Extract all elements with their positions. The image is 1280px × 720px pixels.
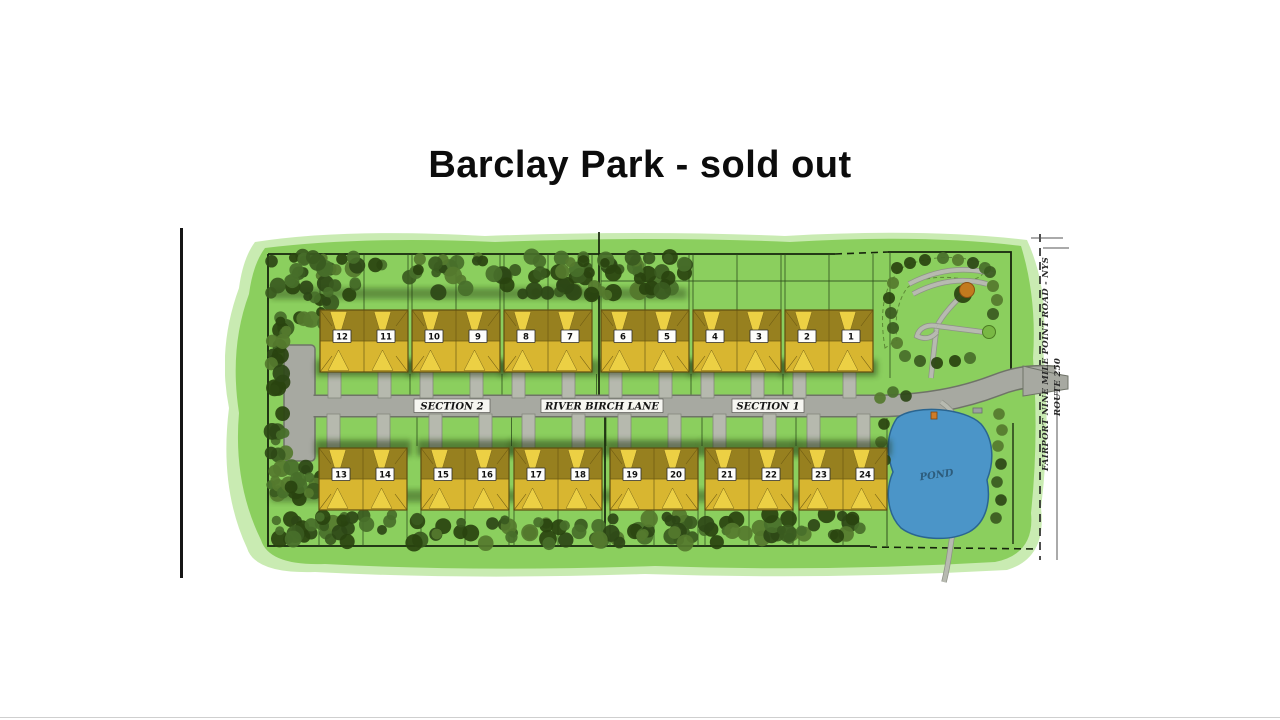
tree-icon bbox=[796, 526, 806, 536]
tree-icon bbox=[887, 277, 899, 289]
tree-icon bbox=[605, 265, 622, 282]
tree-icon bbox=[359, 517, 374, 532]
tree-icon bbox=[304, 472, 314, 482]
road-labels: SECTION 2 RIVER BIRCH LANE SECTION 1 bbox=[414, 399, 804, 413]
tree-icon bbox=[602, 290, 612, 300]
tree-icon bbox=[919, 254, 931, 266]
tree-icon bbox=[677, 257, 692, 272]
turnaround-surface bbox=[286, 347, 314, 460]
tree-icon bbox=[276, 317, 286, 327]
tree-icon bbox=[995, 494, 1007, 506]
route-road-name: FAIRPORT NINE MILE POINT ROAD - NYS bbox=[1041, 257, 1051, 472]
lot-number-15: 15 bbox=[437, 471, 449, 481]
tree-icon bbox=[996, 424, 1008, 436]
lot-number-13: 13 bbox=[335, 471, 347, 481]
lot-number-22: 22 bbox=[765, 471, 777, 481]
tree-icon bbox=[265, 255, 278, 268]
tree-icon bbox=[428, 256, 442, 270]
building-17-18: 1718 bbox=[514, 448, 602, 510]
slide-bottom-rule bbox=[0, 717, 1280, 718]
lot-number-11: 11 bbox=[380, 333, 392, 343]
tree-icon bbox=[995, 458, 1007, 470]
tree-icon bbox=[590, 531, 607, 548]
tree-icon bbox=[265, 447, 278, 460]
tree-icon bbox=[533, 517, 543, 527]
tree-icon bbox=[883, 292, 895, 304]
tree-icon bbox=[672, 515, 681, 524]
tree-icon bbox=[431, 529, 442, 540]
left-vertical-rule bbox=[180, 228, 183, 578]
slide: Barclay Park - sold out 1211109876543211… bbox=[0, 0, 1280, 720]
tree-icon bbox=[949, 355, 961, 367]
tree-icon bbox=[368, 258, 383, 273]
tree-icon bbox=[874, 392, 886, 404]
tree-icon bbox=[276, 430, 285, 439]
tree-icon bbox=[710, 535, 724, 549]
tree-icon bbox=[641, 510, 658, 527]
building-19-20: 1920 bbox=[610, 448, 698, 510]
tree-icon bbox=[456, 518, 466, 528]
lot-number-14: 14 bbox=[379, 471, 391, 481]
tree-icon bbox=[900, 390, 912, 402]
tree-icon bbox=[584, 287, 599, 302]
tree-icon bbox=[724, 523, 740, 539]
lot-number-19: 19 bbox=[626, 471, 638, 481]
tree-icon bbox=[780, 511, 797, 528]
tree-icon bbox=[937, 252, 949, 264]
tree-icon bbox=[289, 263, 303, 277]
route-road-labels: FAIRPORT NINE MILE POINT ROAD - NYS ROUT… bbox=[1041, 257, 1063, 472]
building-12-11: 1211 bbox=[320, 310, 408, 372]
tree-icon bbox=[350, 277, 361, 288]
tree-icon bbox=[662, 512, 673, 523]
tree-icon bbox=[846, 512, 860, 526]
lot-number-20: 20 bbox=[670, 471, 682, 481]
section-1-label: SECTION 1 bbox=[736, 402, 799, 413]
tree-icon bbox=[458, 281, 474, 297]
tree-icon bbox=[444, 267, 462, 285]
tree-icon bbox=[272, 516, 281, 525]
tree-icon bbox=[777, 526, 786, 535]
tree-icon bbox=[309, 254, 326, 271]
lot-number-6: 6 bbox=[620, 333, 626, 343]
tree-icon bbox=[296, 311, 311, 326]
tree-icon bbox=[303, 292, 312, 301]
tree-icon bbox=[677, 535, 694, 552]
tree-icon bbox=[625, 250, 641, 266]
site-plan-svg: 121110987654321131415161718192021222324 … bbox=[225, 228, 1070, 584]
tree-icon bbox=[987, 280, 999, 292]
tree-icon bbox=[275, 526, 284, 535]
tree-icon bbox=[413, 264, 424, 275]
building-21-22: 2122 bbox=[705, 448, 793, 510]
lot-number-8: 8 bbox=[523, 333, 529, 343]
tree-icon bbox=[584, 267, 595, 278]
lot-number-16: 16 bbox=[481, 471, 493, 481]
tree-icon bbox=[555, 264, 570, 279]
route-number: ROUTE 250 bbox=[1053, 358, 1063, 417]
tree-icon bbox=[285, 481, 298, 494]
tree-icon bbox=[525, 282, 542, 299]
lot-number-5: 5 bbox=[664, 333, 670, 343]
tree-icon bbox=[808, 519, 820, 531]
tree-icon bbox=[289, 253, 299, 263]
tree-icon bbox=[500, 277, 515, 292]
tree-icon bbox=[346, 511, 359, 524]
tree-icon bbox=[270, 278, 286, 294]
tree-icon bbox=[904, 257, 916, 269]
tree-icon bbox=[387, 510, 397, 520]
tree-icon bbox=[462, 525, 479, 542]
tree-icon bbox=[887, 386, 899, 398]
tree-icon bbox=[993, 408, 1005, 420]
tree-icon bbox=[305, 518, 318, 531]
building-8-7: 87 bbox=[504, 310, 592, 372]
tree-icon bbox=[577, 255, 589, 267]
lot-number-9: 9 bbox=[475, 333, 481, 343]
tree-icon bbox=[987, 308, 999, 320]
street-name-label: RIVER BIRCH LANE bbox=[544, 402, 659, 413]
lot-number-4: 4 bbox=[712, 333, 718, 343]
tree-icon bbox=[608, 513, 619, 524]
tree-icon bbox=[991, 476, 1003, 488]
tree-icon bbox=[323, 287, 333, 297]
building-23-24: 2324 bbox=[799, 448, 887, 510]
tree-icon bbox=[654, 282, 672, 300]
tree-icon bbox=[565, 257, 575, 267]
tree-icon bbox=[273, 365, 291, 383]
tree-icon bbox=[405, 534, 422, 551]
tree-icon bbox=[572, 524, 587, 539]
tree-icon bbox=[541, 286, 555, 300]
building-13-14: 1314 bbox=[319, 448, 407, 510]
tree-icon bbox=[533, 266, 547, 280]
bench-icon bbox=[973, 408, 982, 413]
tree-icon bbox=[560, 520, 570, 530]
tree-icon bbox=[322, 297, 331, 306]
lot-number-23: 23 bbox=[815, 471, 827, 481]
tree-icon bbox=[698, 516, 715, 533]
tree-icon bbox=[967, 257, 979, 269]
tree-icon bbox=[505, 531, 517, 543]
lot-number-24: 24 bbox=[859, 471, 871, 481]
tree-icon bbox=[414, 253, 426, 265]
lot-number-3: 3 bbox=[756, 333, 762, 343]
tree-icon bbox=[600, 258, 610, 268]
autumn-tree-icon bbox=[960, 283, 975, 298]
tree-icon bbox=[340, 534, 355, 549]
building-15-16: 1516 bbox=[421, 448, 509, 510]
route-edge-ticks bbox=[1031, 238, 1069, 248]
tree-icon bbox=[663, 253, 673, 263]
tree-icon bbox=[668, 526, 681, 539]
tree-icon bbox=[472, 256, 482, 266]
tree-icon bbox=[992, 440, 1004, 452]
lot-number-12: 12 bbox=[336, 333, 348, 343]
tree-icon bbox=[304, 488, 314, 498]
section-2-label: SECTION 2 bbox=[420, 402, 483, 413]
tree-icon bbox=[830, 529, 844, 543]
lot-number-1: 1 bbox=[848, 333, 854, 343]
lot-number-17: 17 bbox=[530, 471, 542, 481]
site-plan-map: 121110987654321131415161718192021222324 … bbox=[225, 228, 1070, 584]
tree-icon bbox=[887, 322, 899, 334]
tree-icon bbox=[377, 525, 387, 535]
building-6-5: 65 bbox=[601, 310, 689, 372]
tree-icon bbox=[639, 529, 648, 538]
tree-icon bbox=[639, 283, 651, 295]
lot-number-2: 2 bbox=[804, 333, 810, 343]
tree-icon bbox=[521, 524, 538, 541]
tree-icon bbox=[991, 294, 1003, 306]
tree-icon bbox=[878, 418, 890, 430]
tree-icon bbox=[485, 265, 502, 282]
tree-icon bbox=[990, 512, 1002, 524]
tree-icon bbox=[891, 337, 903, 349]
tree-icon bbox=[542, 537, 555, 550]
bush-icon bbox=[983, 326, 996, 339]
tree-icon bbox=[478, 535, 494, 551]
lot-number-21: 21 bbox=[721, 471, 733, 481]
building-4-3: 43 bbox=[693, 310, 781, 372]
tree-icon bbox=[931, 357, 943, 369]
lot-number-10: 10 bbox=[428, 333, 440, 343]
tree-icon bbox=[984, 266, 996, 278]
tree-icon bbox=[964, 352, 976, 364]
tree-icon bbox=[275, 334, 290, 349]
tree-icon bbox=[517, 288, 528, 299]
tree-icon bbox=[275, 406, 290, 421]
tree-icon bbox=[347, 251, 360, 264]
tree-icon bbox=[315, 512, 324, 521]
lot-number-18: 18 bbox=[574, 471, 586, 481]
tree-icon bbox=[486, 517, 499, 530]
tree-icon bbox=[270, 475, 280, 485]
tree-icon bbox=[565, 284, 582, 301]
tree-icon bbox=[524, 248, 540, 264]
tree-icon bbox=[411, 513, 423, 525]
tree-icon bbox=[285, 531, 302, 548]
tree-icon bbox=[899, 350, 911, 362]
tree-icon bbox=[885, 307, 897, 319]
tree-icon bbox=[430, 284, 446, 300]
building-10-9: 109 bbox=[412, 310, 500, 372]
tree-icon bbox=[684, 516, 697, 529]
tree-icon bbox=[952, 254, 964, 266]
tree-icon bbox=[336, 253, 347, 264]
tree-icon bbox=[891, 262, 903, 274]
tree-icon bbox=[500, 515, 509, 524]
tree-icon bbox=[914, 355, 926, 367]
building-2-1: 21 bbox=[785, 310, 873, 372]
lot-number-7: 7 bbox=[567, 333, 573, 343]
pond-structure-icon bbox=[931, 412, 937, 419]
tree-icon bbox=[643, 252, 655, 264]
page-title: Barclay Park - sold out bbox=[0, 144, 1280, 187]
